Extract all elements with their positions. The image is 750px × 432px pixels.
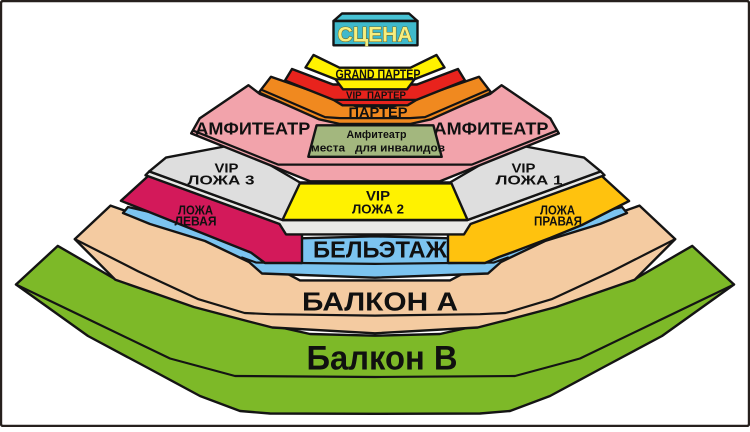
svg-text:VIP ПАРТЕР: VIP ПАРТЕР [346, 89, 406, 101]
svg-text:Амфитеатр: Амфитеатр [347, 129, 407, 141]
svg-text:Балкон В: Балкон В [307, 340, 458, 378]
svg-text:АМФИТЕАТР: АМФИТЕАТР [434, 119, 549, 139]
svg-text:места для инвалидов: места для инвалидов [311, 142, 445, 154]
svg-text:БЕЛЬЭТАЖ: БЕЛЬЭТАЖ [313, 237, 447, 263]
svg-text:СЦЕНА: СЦЕНА [338, 24, 413, 47]
svg-text:ЛОЖА 2: ЛОЖА 2 [352, 203, 404, 217]
svg-text:ЛОЖА 3: ЛОЖА 3 [188, 173, 255, 188]
svg-text:GRAND ПАРТЕР: GRAND ПАРТЕР [336, 67, 421, 82]
svg-text:ЛОЖА 1: ЛОЖА 1 [496, 173, 563, 188]
svg-text:ПАРТЕР: ПАРТЕР [349, 105, 408, 120]
svg-text:БАЛКОН А: БАЛКОН А [302, 287, 458, 317]
svg-text:АМФИТЕАТР: АМФИТЕАТР [195, 119, 310, 139]
svg-text:ЛЕВАЯ: ЛЕВАЯ [175, 214, 217, 229]
svg-text:ПРАВАЯ: ПРАВАЯ [534, 214, 582, 229]
svg-text:VIP: VIP [366, 188, 390, 203]
